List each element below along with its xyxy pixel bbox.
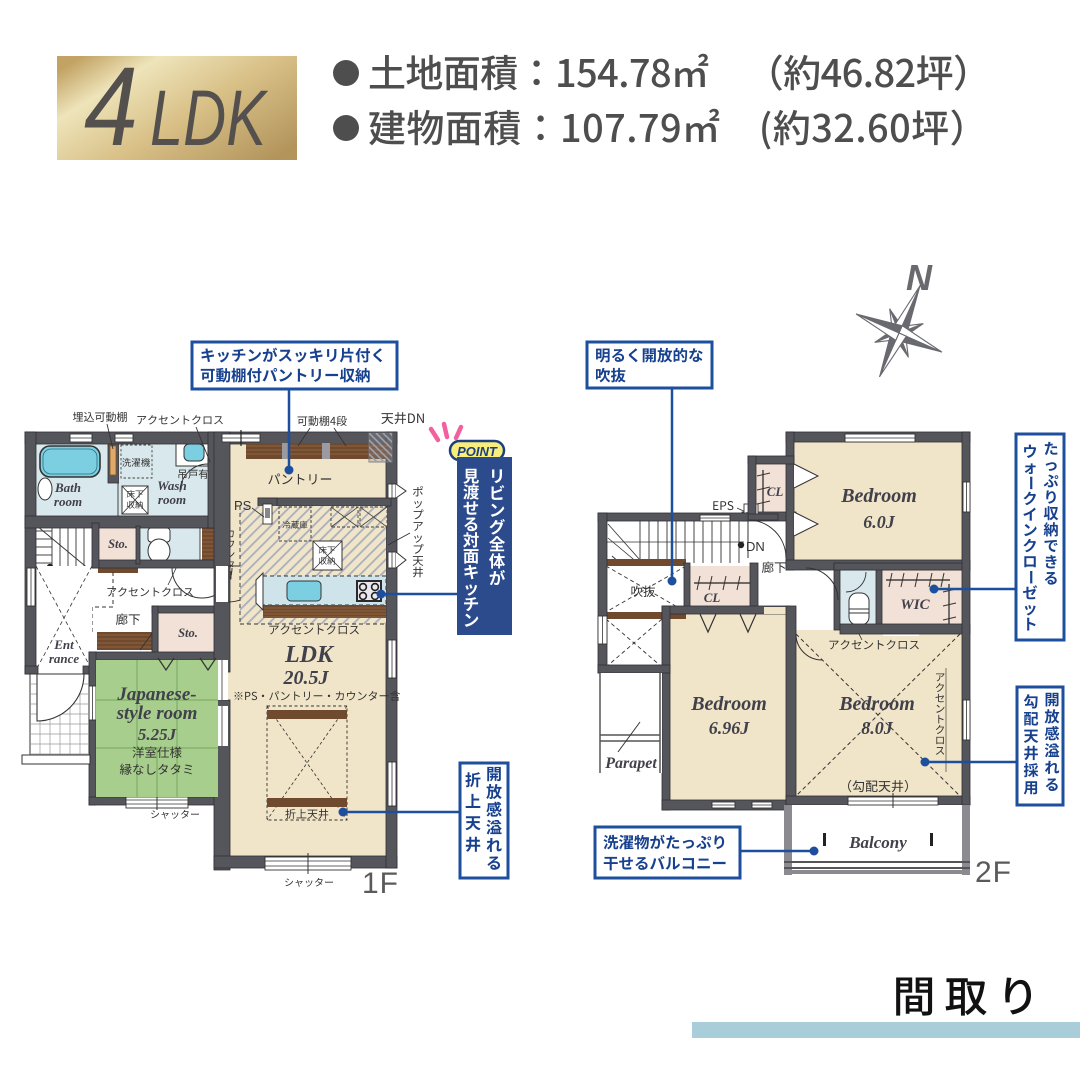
svg-text:Ent: Ent — [53, 637, 74, 652]
svg-text:8.0J: 8.0J — [861, 718, 894, 738]
svg-text:Balcony: Balcony — [848, 833, 907, 852]
svg-text:20.5J: 20.5J — [283, 667, 330, 689]
svg-text:Bedroom: Bedroom — [840, 485, 917, 507]
svg-text:LDK: LDK — [150, 73, 268, 162]
svg-text:PS: PS — [234, 498, 252, 513]
svg-text:5.25J: 5.25J — [138, 725, 177, 744]
svg-text:rance: rance — [49, 651, 80, 666]
svg-text:CL: CL — [704, 590, 721, 605]
svg-text:DN: DN — [746, 539, 765, 554]
svg-text:room: room — [158, 492, 186, 507]
svg-text:Sto.: Sto. — [178, 626, 198, 640]
svg-text:Sto.: Sto. — [108, 537, 128, 551]
svg-text:WIC: WIC — [900, 597, 930, 613]
svg-text:2F: 2F — [975, 856, 1012, 889]
svg-text:CL: CL — [767, 484, 784, 499]
svg-text:room: room — [54, 494, 82, 509]
svg-text:Bedroom: Bedroom — [690, 693, 767, 715]
svg-text:POINT: POINT — [457, 444, 498, 459]
svg-text:4: 4 — [84, 44, 138, 169]
svg-text:6.0J: 6.0J — [863, 512, 896, 532]
svg-text:Parapet: Parapet — [604, 755, 657, 772]
svg-text:Bath: Bath — [54, 480, 81, 495]
svg-text:Japanese-: Japanese- — [116, 684, 196, 705]
svg-text:1F: 1F — [362, 867, 399, 900]
svg-text:Bedroom: Bedroom — [838, 693, 915, 715]
svg-text:LDK: LDK — [284, 642, 335, 668]
svg-text:style room: style room — [116, 703, 198, 724]
svg-text:6.96J: 6.96J — [709, 718, 751, 738]
svg-text:N: N — [906, 257, 933, 298]
